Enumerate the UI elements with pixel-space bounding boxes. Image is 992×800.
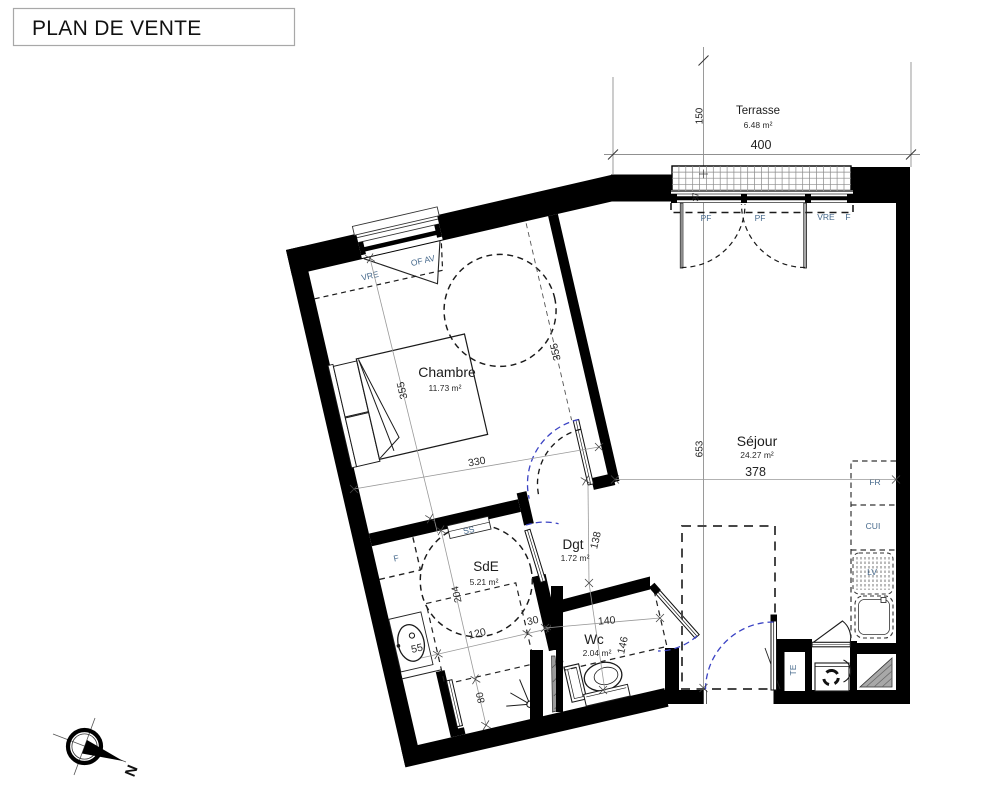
svg-text:PF: PF (755, 213, 766, 223)
svg-text:LV: LV (867, 567, 877, 577)
svg-text:2.04 m²: 2.04 m² (583, 648, 612, 658)
svg-text:1.72 m²: 1.72 m² (561, 553, 590, 563)
svg-text:24.27 m²: 24.27 m² (740, 450, 774, 460)
svg-text:400: 400 (751, 138, 772, 152)
svg-text:PLAN DE VENTE: PLAN DE VENTE (32, 17, 202, 40)
svg-text:F: F (845, 212, 850, 222)
svg-text:11.73 m²: 11.73 m² (429, 383, 462, 393)
svg-text:SdE: SdE (473, 559, 499, 574)
svg-text:5.21 m²: 5.21 m² (470, 577, 499, 587)
svg-text:6.48 m²: 6.48 m² (744, 120, 773, 130)
svg-text:Séjour: Séjour (737, 433, 778, 449)
svg-text:Wc: Wc (584, 632, 604, 647)
svg-text:CUI: CUI (866, 521, 881, 531)
svg-text:Dgt: Dgt (562, 537, 583, 552)
svg-text:653: 653 (695, 440, 706, 457)
svg-text:37: 37 (692, 192, 701, 201)
svg-text:VRE: VRE (817, 212, 835, 222)
svg-text:Terrasse: Terrasse (736, 105, 780, 117)
svg-text:Chambre: Chambre (418, 364, 476, 380)
svg-text:140: 140 (597, 614, 616, 627)
svg-text:150: 150 (695, 107, 706, 124)
svg-text:PF: PF (701, 213, 712, 223)
svg-text:FR: FR (869, 477, 880, 487)
svg-text:TE: TE (788, 664, 798, 675)
svg-text:378: 378 (745, 465, 766, 479)
